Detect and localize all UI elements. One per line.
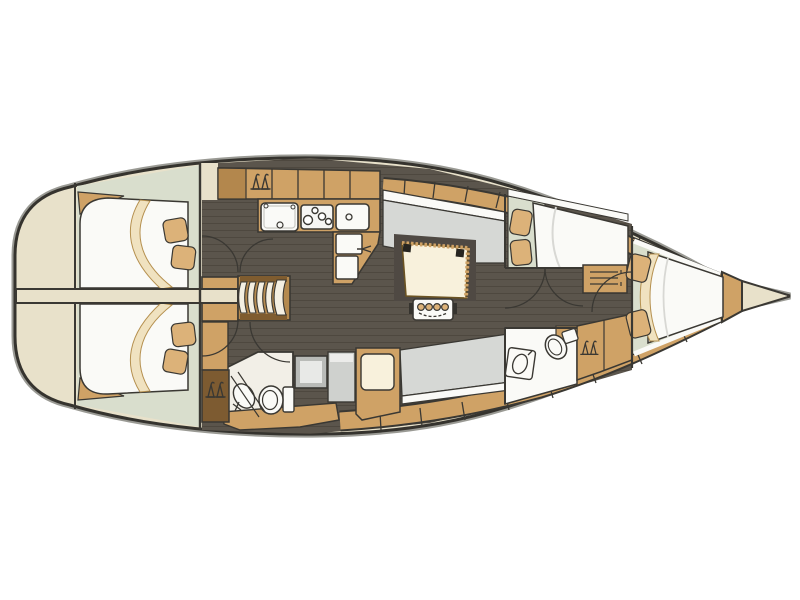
bulkhead-cream-strip [201, 163, 218, 200]
guest-drawer-unit [583, 265, 627, 293]
nav-seat-cushion [361, 354, 394, 390]
anchor-locker [742, 281, 788, 311]
side-cabinet-top [330, 354, 353, 362]
fridge-lid-1 [336, 234, 362, 254]
sink-faucet-dot-2 [291, 205, 295, 209]
aft-head-wardrobe [202, 370, 229, 422]
table-support-bracket [409, 299, 457, 320]
galley-locker-dark-cell [218, 168, 246, 199]
sink-faucet-dot-1 [264, 204, 268, 208]
aft-stbd-pillow-1 [162, 348, 189, 375]
floor-plan-svg: Sailing yacht interior layout plan, top … [0, 0, 800, 600]
aft-cabin-port [77, 165, 200, 289]
fwd-head-washbasin [505, 347, 536, 379]
aft-head-side-cabinet [202, 322, 228, 370]
guest-pillow-1 [509, 208, 533, 236]
bow-band [722, 272, 742, 322]
aft-stbd-pillow-2 [171, 322, 197, 348]
aft-port-pillow-1 [162, 217, 189, 244]
guest-pillow-2 [510, 239, 533, 266]
fwd-island-berth [648, 252, 723, 343]
sink-drain [277, 222, 283, 228]
yacht-floor-plan: Sailing yacht interior layout plan, top … [0, 0, 800, 600]
aft-port-pillow-2 [171, 245, 197, 271]
fridge-lid-2 [336, 256, 358, 279]
table-corner-left [403, 244, 412, 253]
shower-pan-inner [300, 361, 322, 383]
stern-walkway [16, 289, 238, 303]
aft-head-toilet [259, 386, 294, 414]
table-corner-right [456, 249, 465, 258]
forward-cabin [625, 240, 723, 355]
